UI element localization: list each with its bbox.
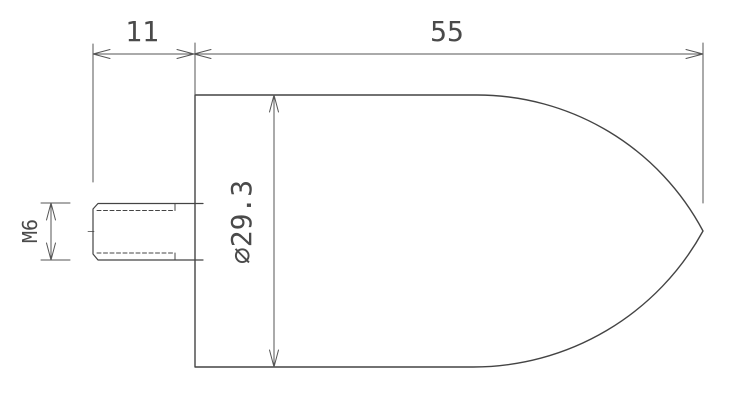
dimension-annotations: [41, 43, 703, 367]
label-stud-length: 11: [125, 15, 159, 48]
part-body-outline: [195, 95, 703, 367]
technical-drawing: 11 55 ⌀29.3 M6: [0, 0, 744, 401]
dimension-thread-size: [41, 203, 70, 260]
label-thread-size: M6: [18, 219, 42, 243]
dimension-labels: 11 55 ⌀29.3 M6: [18, 15, 464, 264]
extension-lines: [93, 43, 703, 203]
threaded-stud-outline: [93, 204, 203, 261]
technical-drawing-canvas: 11 55 ⌀29.3 M6: [0, 0, 744, 401]
dimension-stud-length: [93, 50, 194, 59]
thread-minor-diameter-lines: [97, 211, 175, 254]
label-body-length: 55: [430, 15, 464, 48]
part-view: [88, 95, 703, 367]
dimension-body-diameter: [270, 95, 279, 367]
dimension-body-length: [194, 50, 703, 59]
label-body-diameter: ⌀29.3: [225, 180, 258, 264]
